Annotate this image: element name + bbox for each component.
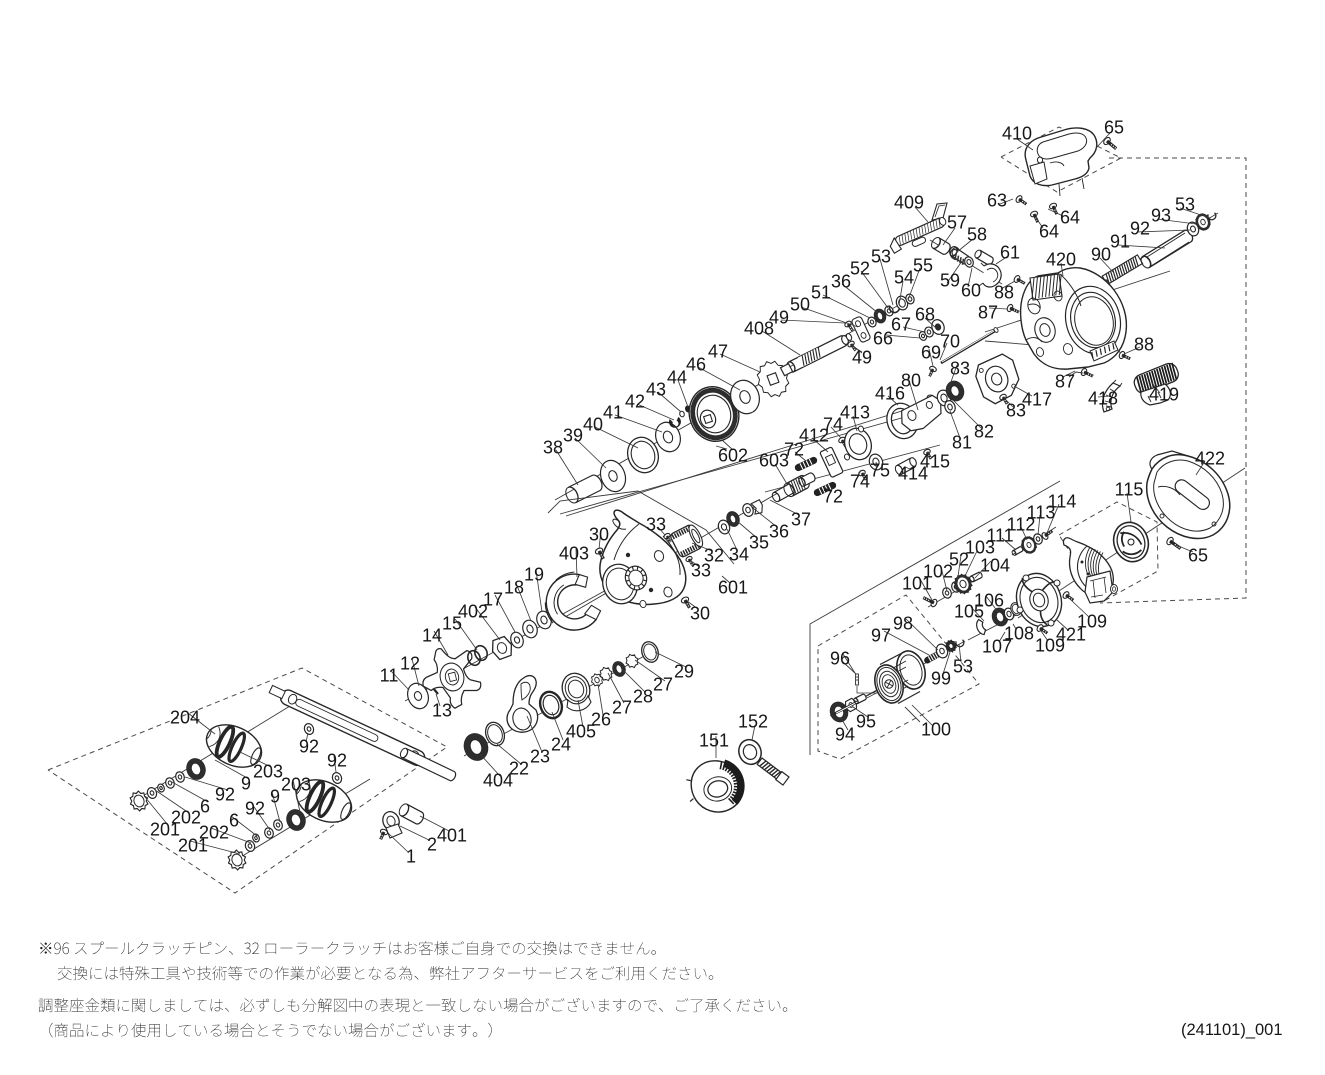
svg-text:53: 53 (953, 656, 973, 676)
svg-text:35: 35 (749, 532, 769, 552)
svg-text:69: 69 (921, 342, 941, 362)
svg-text:115: 115 (1115, 479, 1144, 499)
svg-text:401: 401 (437, 825, 467, 845)
svg-text:93: 93 (1151, 205, 1171, 225)
svg-text:14: 14 (422, 625, 442, 645)
svg-text:58: 58 (967, 224, 987, 244)
svg-text:13: 13 (432, 700, 452, 720)
svg-text:74: 74 (850, 471, 870, 491)
svg-text:409: 409 (894, 192, 924, 212)
svg-text:9: 9 (270, 786, 280, 806)
svg-text:(241101)_001: (241101)_001 (1181, 1021, 1283, 1039)
svg-text:39: 39 (563, 425, 583, 445)
svg-text:67: 67 (891, 314, 911, 334)
svg-text:201: 201 (150, 819, 180, 839)
svg-text:18: 18 (504, 577, 524, 597)
svg-text:50: 50 (790, 294, 810, 314)
svg-text:12: 12 (400, 653, 420, 673)
svg-text:104: 104 (980, 555, 1010, 575)
svg-text:57: 57 (947, 212, 967, 232)
svg-text:75: 75 (870, 460, 890, 480)
svg-text:2: 2 (427, 834, 437, 854)
svg-text:53: 53 (1175, 194, 1195, 214)
svg-text:403: 403 (559, 543, 589, 563)
svg-text:92: 92 (245, 798, 265, 818)
svg-text:33: 33 (691, 560, 711, 580)
svg-text:109: 109 (1035, 635, 1065, 655)
svg-text:95: 95 (856, 711, 876, 731)
svg-text:100: 100 (921, 719, 951, 739)
svg-text:44: 44 (667, 367, 687, 387)
svg-text:70: 70 (940, 331, 960, 351)
svg-text:72: 72 (823, 486, 843, 506)
svg-text:30: 30 (690, 603, 710, 623)
svg-text:34: 34 (729, 544, 749, 564)
svg-text:41: 41 (603, 402, 623, 422)
svg-text:87: 87 (978, 302, 998, 322)
svg-text:64: 64 (1060, 207, 1080, 227)
svg-text:103: 103 (965, 537, 995, 557)
svg-text:61: 61 (1000, 242, 1020, 262)
svg-text:90: 90 (1091, 244, 1111, 264)
svg-text:36: 36 (831, 271, 851, 291)
svg-text:46: 46 (686, 354, 706, 374)
svg-text:30: 30 (589, 524, 609, 544)
svg-text:59: 59 (940, 270, 960, 290)
svg-text:203: 203 (281, 774, 311, 794)
svg-text:99: 99 (931, 668, 951, 688)
svg-text:92: 92 (1130, 218, 1150, 238)
svg-text:417: 417 (1022, 389, 1052, 409)
svg-text:28: 28 (633, 686, 653, 706)
svg-text:54: 54 (894, 267, 914, 287)
svg-text:65: 65 (1188, 545, 1208, 565)
svg-text:42: 42 (625, 391, 645, 411)
svg-text:92: 92 (299, 736, 319, 756)
svg-text:63: 63 (987, 190, 1007, 210)
svg-text:83: 83 (1006, 400, 1026, 420)
svg-text:24: 24 (551, 734, 571, 754)
svg-text:38: 38 (543, 437, 563, 457)
svg-text:9: 9 (241, 773, 251, 793)
svg-text:11: 11 (380, 665, 399, 685)
svg-text:203: 203 (253, 761, 283, 781)
svg-text:40: 40 (583, 414, 603, 434)
svg-text:601: 601 (718, 577, 748, 597)
svg-text:105: 105 (954, 601, 984, 621)
svg-text:91: 91 (1110, 231, 1130, 251)
svg-text:19: 19 (524, 564, 544, 584)
svg-text:416: 416 (875, 383, 905, 403)
svg-text:418: 418 (1088, 388, 1118, 408)
svg-text:152: 152 (738, 711, 768, 731)
svg-text:66: 66 (873, 328, 893, 348)
svg-text:92: 92 (215, 784, 235, 804)
svg-text:1: 1 (406, 846, 416, 866)
svg-text:408: 408 (744, 318, 774, 338)
svg-text:65: 65 (1104, 117, 1124, 137)
svg-text:92: 92 (327, 750, 347, 770)
svg-text:82: 82 (974, 421, 994, 441)
svg-text:98: 98 (893, 613, 913, 633)
svg-text:55: 55 (913, 255, 933, 275)
svg-text:413: 413 (840, 402, 870, 422)
svg-text:83: 83 (950, 358, 970, 378)
svg-text:404: 404 (483, 770, 513, 790)
svg-text:27: 27 (612, 697, 632, 717)
svg-text:37: 37 (791, 509, 811, 529)
svg-text:107: 107 (982, 636, 1012, 656)
svg-text:201: 201 (178, 835, 208, 855)
svg-text:81: 81 (952, 432, 972, 452)
svg-text:97: 97 (871, 625, 891, 645)
svg-text:6: 6 (200, 796, 210, 816)
svg-text:96: 96 (830, 648, 850, 668)
svg-text:36: 36 (769, 521, 789, 541)
svg-text:88: 88 (1134, 334, 1154, 354)
svg-text:15: 15 (442, 613, 462, 633)
svg-text:6: 6 (229, 810, 239, 830)
svg-text:43: 43 (646, 379, 666, 399)
svg-text:52: 52 (850, 258, 870, 278)
svg-text:415: 415 (920, 451, 950, 471)
svg-text:60: 60 (961, 280, 981, 300)
svg-text:47: 47 (708, 341, 728, 361)
svg-text:64: 64 (1039, 221, 1059, 241)
svg-text:151: 151 (699, 730, 729, 750)
svg-text:204: 204 (170, 707, 200, 727)
svg-text:68: 68 (915, 304, 935, 324)
svg-text:53: 53 (871, 246, 891, 266)
svg-text:410: 410 (1002, 123, 1032, 143)
svg-text:27: 27 (653, 674, 673, 694)
svg-text:402: 402 (458, 601, 488, 621)
svg-text:419: 419 (1149, 384, 1179, 404)
svg-text:49: 49 (852, 347, 872, 367)
svg-text:101: 101 (902, 573, 932, 593)
svg-text:420: 420 (1046, 249, 1076, 269)
svg-text:51: 51 (811, 282, 831, 302)
svg-text:88: 88 (994, 282, 1014, 302)
svg-text:422: 422 (1195, 448, 1225, 468)
svg-text:602: 602 (718, 445, 748, 465)
svg-text:33: 33 (646, 514, 666, 534)
svg-text:29: 29 (674, 661, 694, 681)
svg-text:87: 87 (1055, 371, 1075, 391)
svg-text:94: 94 (835, 724, 855, 744)
svg-text:23: 23 (530, 746, 550, 766)
